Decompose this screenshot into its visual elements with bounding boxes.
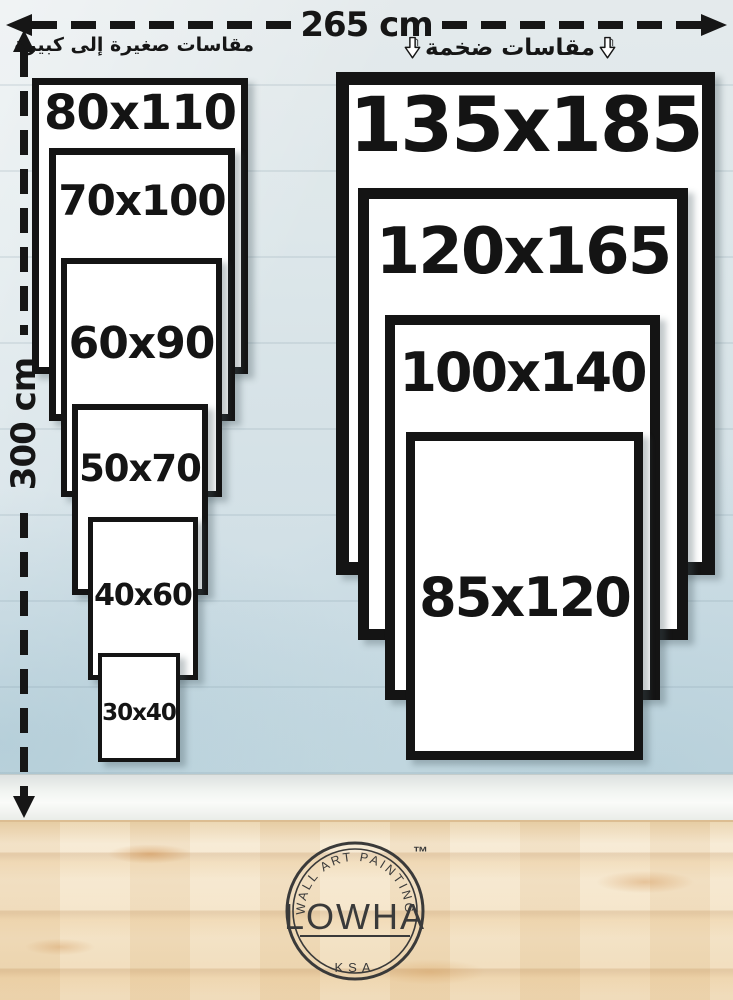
dashed-line (20, 52, 28, 335)
size-label: 60x90 (67, 322, 216, 366)
height-dimension-label: 300 cm (4, 358, 44, 490)
size-label: 50x70 (78, 450, 202, 487)
group-label-text: مقاسات صغيرة إلى كبيرة (10, 34, 258, 56)
group-label-text: مقاسات ضخمة (421, 35, 599, 61)
arrowhead-right-icon (701, 14, 727, 36)
trademark-symbol: ™ (413, 844, 428, 861)
group-label-small-to-large: مقاسات صغيرة إلى كبيرة (24, 27, 258, 63)
dashed-line (442, 21, 701, 29)
size-label: 100x140 (395, 346, 650, 400)
country-label: KSA (334, 960, 375, 975)
size-label: 70x100 (56, 180, 228, 222)
height-dimension-label-wrap: 300 cm (6, 335, 42, 513)
size-frame-85x120: 85x120 (406, 432, 643, 760)
size-frame-30x40: 30x40 (98, 653, 180, 762)
size-label: 30x40 (102, 702, 176, 725)
brand-name: LOWHA (284, 896, 426, 937)
size-chart-scene: 265 cm 300 cm مقاسات صغيرة إلى كبيرة مقا… (0, 0, 733, 1000)
size-label: 40x60 (93, 581, 193, 611)
size-label: 85x120 (415, 571, 634, 625)
group-label-huge-sizes: مقاسات ضخمة (404, 29, 616, 67)
down-arrow-icon (599, 29, 616, 67)
size-label: 80x110 (39, 89, 241, 137)
dashed-line (20, 513, 28, 796)
size-label: 120x165 (369, 220, 677, 284)
size-label: 135x185 (349, 87, 702, 163)
down-arrow-icon (404, 29, 421, 67)
arrowhead-down-icon (13, 796, 35, 818)
brand-logo: WALL ART PAINTING LOWHA KSA ™ (270, 833, 470, 1000)
height-dimension-arrow: 300 cm (6, 30, 42, 818)
baseboard (0, 774, 733, 821)
